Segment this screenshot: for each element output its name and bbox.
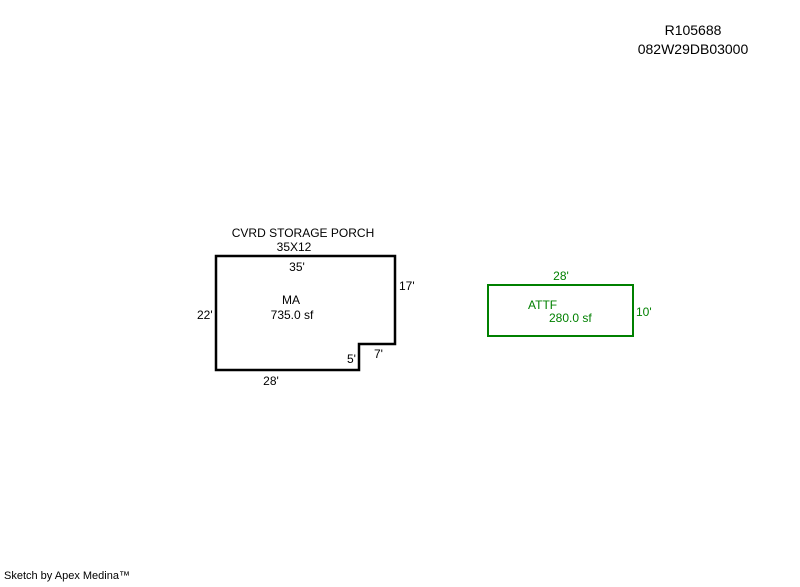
main-area-sqft: 735.0 sf (271, 309, 314, 322)
main-dim-top: 35' (289, 261, 305, 274)
sketch-credit: Sketch by Apex Medina™ (4, 570, 130, 582)
main-dim-notch-top: 7' (374, 348, 383, 361)
attf-dim-right: 10' (636, 306, 652, 319)
main-area-code: MA (282, 294, 300, 307)
main-caption-line1: CVRD STORAGE PORCH (232, 227, 374, 240)
header-identifiers: R105688 082W29DB03000 (583, 21, 800, 59)
attf-dim-top: 28' (553, 270, 569, 283)
main-caption-line2: 35X12 (277, 241, 312, 254)
main-dim-notch-side: 5' (347, 353, 356, 366)
main-dim-bottom: 28' (263, 375, 279, 388)
main-dim-left: 22' (197, 309, 213, 322)
maptaxlot-number: 082W29DB03000 (583, 40, 800, 59)
attf-area-sqft: 280.0 sf (549, 312, 592, 325)
sketch-canvas: R105688 082W29DB03000 CVRD STORAGE PORCH… (0, 0, 800, 587)
record-number: R105688 (583, 21, 800, 40)
sketch-shapes-layer (0, 0, 800, 587)
main-dim-right: 17' (399, 280, 415, 293)
